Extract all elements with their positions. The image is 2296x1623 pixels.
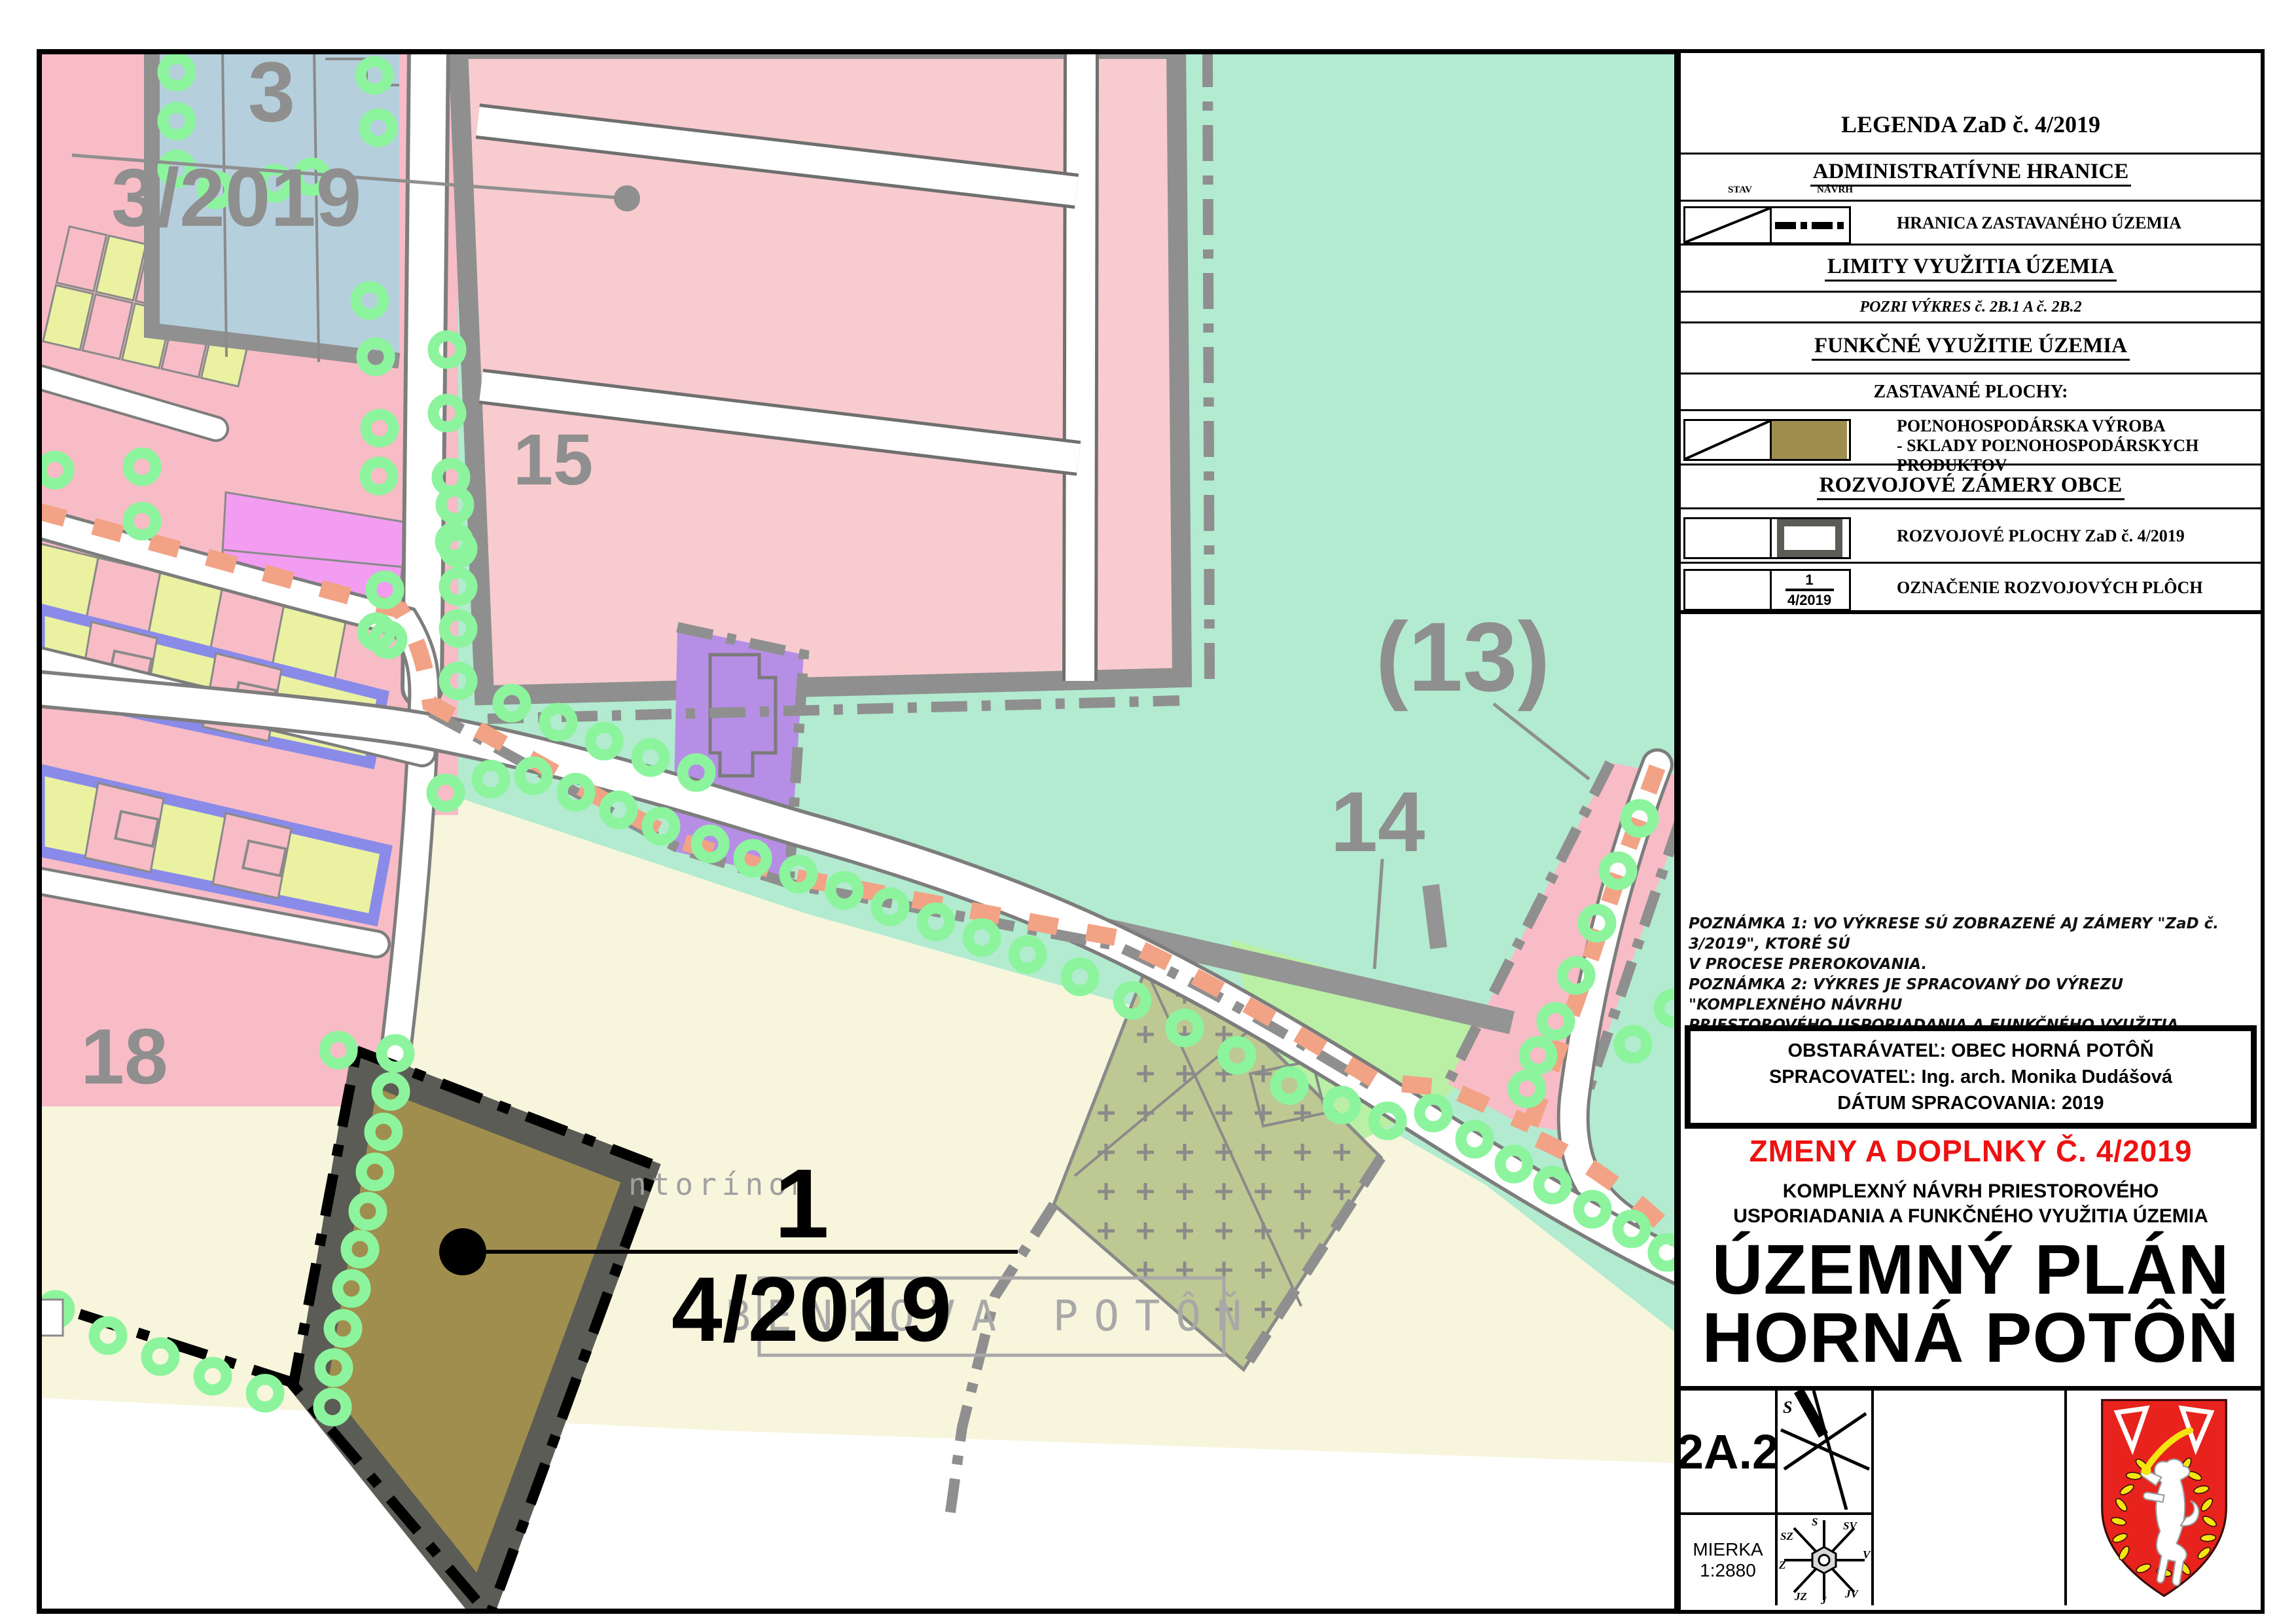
farm-block xyxy=(458,49,1182,695)
label-zone18: 18 xyxy=(81,1013,168,1101)
legend-pozri: POZRI VÝKRES č. 2B.1 A č. 2B.2 xyxy=(1859,299,2081,316)
title-main1: ÚZEMNÝ PLÁN xyxy=(1681,1235,2261,1304)
svg-text:V: V xyxy=(1863,1548,1871,1561)
sheet-info-grid: 2A.2 MIERKA 1:2880 S xyxy=(1681,1386,2261,1610)
title-block: ZMENY A DOPLNKY Č. 4/2019 KOMPLEXNÝ NÁVR… xyxy=(1681,1133,2261,1372)
compass-rose-icon: S SV V JV J JZ Z SZ xyxy=(1778,1515,1871,1605)
svg-text:JV: JV xyxy=(1844,1588,1859,1600)
label-dev-no: 1 xyxy=(774,1148,829,1258)
label-dev-ref: 4/2019 xyxy=(672,1258,952,1360)
scale-label: MIERKA xyxy=(1693,1539,1763,1560)
note-line: POZNÁMKA 1: VO VÝKRESE SÚ ZOBRAZENÉ AJ Z… xyxy=(1689,914,2255,955)
gray-road-2 xyxy=(1431,885,1439,948)
legend-frac-top: 1 xyxy=(1805,572,1813,587)
label-zone3: 3 xyxy=(248,49,295,139)
scale-value: 1:2880 xyxy=(1700,1560,1756,1581)
note-line: V PROCESE PREROKOVANIA. xyxy=(1689,955,2255,975)
label-zone3-ref: 3/2019 xyxy=(111,153,361,244)
legend-admin-header: ADMINISTRATÍVNE HRANICE xyxy=(1681,160,2261,184)
label-zone15: 15 xyxy=(513,420,593,500)
legend-col-navrh: NÁVRH xyxy=(1817,185,1853,196)
publisher-datum: DÁTUM SPRACOVANIA: 2019 xyxy=(1837,1090,2104,1116)
symbol-hranica xyxy=(1683,206,1851,244)
legend-rozvoj-header: ROZVOJOVÉ ZÁMERY OBCE xyxy=(1681,473,2261,498)
publisher-spracovatel: SPRACOVATEĽ: Ing. arch. Monika Dudášová xyxy=(1769,1064,2172,1090)
note-line: POZNÁMKA 2: VÝKRES JE SPRACOVANÝ DO VÝRE… xyxy=(1689,975,2255,1015)
legend-frac-bottom: 4/2019 xyxy=(1787,593,1831,608)
svg-text:S: S xyxy=(1812,1516,1818,1528)
plan-sheet: 3 3/2019 15 (13) 14 18 ntorínom BENKOVA … xyxy=(0,0,2296,1623)
symbol-oznacenie: 1 4/2019 xyxy=(1683,569,1851,611)
title-main2: HORNÁ POTÔŇ xyxy=(1681,1304,2261,1372)
svg-text:S: S xyxy=(1783,1398,1792,1417)
symbol-polno xyxy=(1683,419,1851,461)
coat-of-arms xyxy=(2094,1395,2234,1601)
label-zone13: (13) xyxy=(1376,602,1551,712)
svg-text:JZ: JZ xyxy=(1794,1590,1807,1603)
publisher-box: OBSTARÁVATEĽ: OBEC HORNÁ POTÔŇ SPRACOVAT… xyxy=(1685,1025,2257,1129)
symbol-rozvoj-plochy xyxy=(1683,517,1851,559)
legend-col-stav: STAV xyxy=(1728,185,1752,196)
svg-text:SZ: SZ xyxy=(1780,1530,1793,1542)
north-arrow-icon: S xyxy=(1778,1391,1871,1510)
legend-limity-header: LIMITY VYUŽITIA ÚZEMIA xyxy=(1681,255,2261,279)
svg-text:SV: SV xyxy=(1843,1520,1857,1532)
legend-hranica-label: HRANICA ZASTAVANÉHO ÚZEMIA xyxy=(1897,213,2181,233)
publisher-obstaravatel: OBSTARÁVATEĽ: OBEC HORNÁ POTÔŇ xyxy=(1787,1038,2153,1064)
title-red: ZMENY A DOPLNKY Č. 4/2019 xyxy=(1681,1133,2261,1169)
legend-panel: LEGENDA ZaD č. 4/2019 ADMINISTRATÍVNE HR… xyxy=(1677,49,2265,1614)
svg-text:Z: Z xyxy=(1778,1559,1785,1571)
legend-funkcne-header: FUNKČNÉ VYUŽITIE ÚZEMIA xyxy=(1681,334,2261,358)
legend-oznacenie-label: OZNAČENIE ROZVOJOVÝCH PLÔCH xyxy=(1897,578,2203,598)
label-zone14: 14 xyxy=(1331,774,1426,869)
map-canvas: 3 3/2019 15 (13) 14 18 ntorínom BENKOVA … xyxy=(37,49,1679,1614)
legend-title: LEGENDA ZaD č. 4/2019 xyxy=(1841,111,2100,138)
svg-text:J: J xyxy=(1820,1594,1827,1605)
title-sub2: USPORIADANIA A FUNKČNÉHO VYUŽITIA ÚZEMIA xyxy=(1681,1204,2261,1229)
title-sub1: KOMPLEXNÝ NÁVRH PRIESTOROVÉHO xyxy=(1681,1179,2261,1204)
leader-dot-3-2019 xyxy=(614,185,640,211)
legend-zastavane: ZASTAVANÉ PLOCHY: xyxy=(1874,382,2068,403)
legend-polno-line1: POĽNOHOSPODÁRSKA VÝROBA xyxy=(1897,416,2261,436)
sheet-number: 2A.2 xyxy=(1677,1424,1779,1480)
legend-rozvoj-plochy-label: ROZVOJOVÉ PLOCHY ZaD č. 4/2019 xyxy=(1897,526,2185,546)
